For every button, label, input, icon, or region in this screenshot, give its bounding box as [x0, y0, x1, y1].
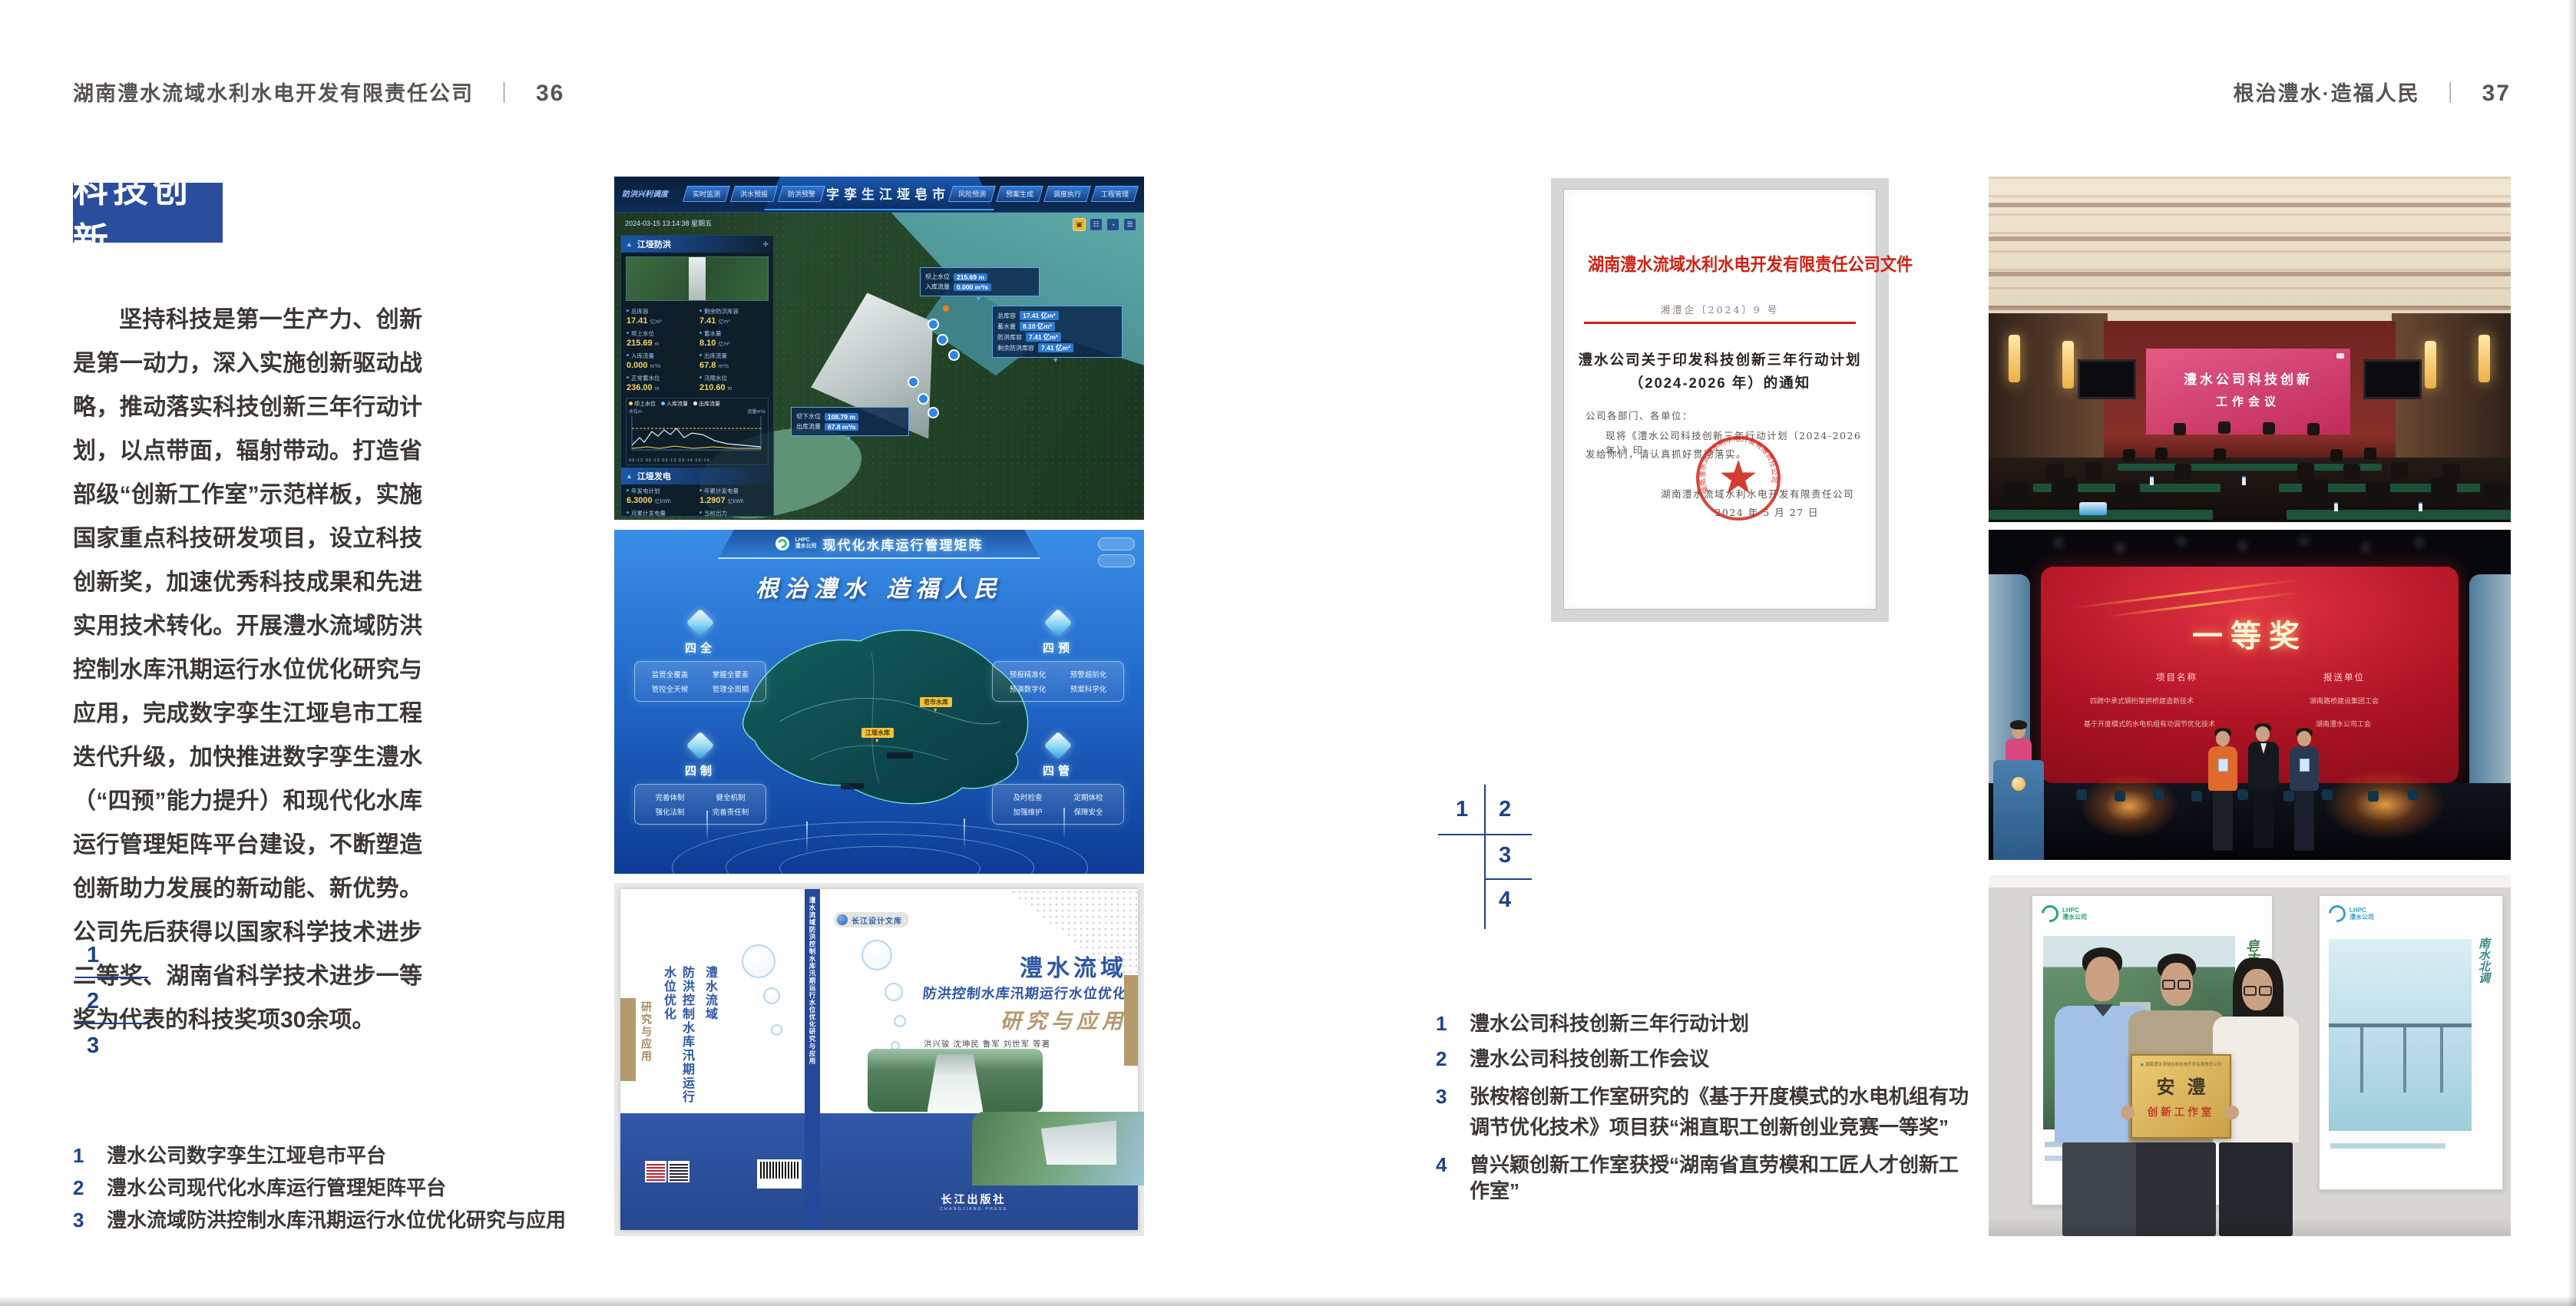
caption-row: 1 澧水公司数字孪生江垭皂市平台 [73, 1142, 580, 1169]
book-slogan: 根治澧水·造福人民 [2234, 82, 2420, 105]
left-page-header: 湖南澧水流域水利水电开发有限责任公司｜36 [73, 77, 564, 107]
ceiling-stripes [1989, 177, 2511, 334]
book-spine: 澧水流域防洪控制水库汛期运行水位优化研究与应用 [805, 889, 820, 1230]
document-salutation: 公司各部门、各单位： [1586, 408, 1693, 422]
page-bottom-shadow [0, 1296, 2576, 1306]
document-number: 湘澧企〔2024〕9 号 [1564, 302, 1876, 316]
dam-thumbnail [626, 256, 769, 301]
wall-lamp [2062, 341, 2074, 388]
dashboard-sidebar: ▲ 江垭防洪 ✛ 总库容17.41亿m³ 剩余防洪库容7.41亿m³ 坝上水位2… [620, 235, 774, 517]
document-paper: 湖南澧水流域水利水电开发有限责任公司文件 湘澧企〔2024〕9 号 澧水公司关于… [1563, 189, 1877, 610]
light-pillar [964, 818, 965, 851]
bridge-pier [2403, 1027, 2406, 1093]
figure-index-2: 2 [87, 989, 99, 1014]
figure-official-document: 湖南澧水流域水利水电开发有限责任公司文件 湘澧企〔2024〕9 号 澧水公司关于… [1551, 178, 1889, 622]
toolbar-button[interactable] [1098, 537, 1135, 551]
series-name: 长江设计文库 [852, 914, 902, 926]
person-marker [943, 306, 949, 312]
caption-number: 3 [1436, 1081, 1470, 1112]
matrix-title: 现代化水库运行管理矩阵 [823, 534, 984, 554]
figure-matrix-platform: LHPC澧水公司 现代化水库运行管理矩阵 根治澧水 造福人民 皂市水库 江垭水库… [614, 530, 1144, 874]
barcode [757, 1159, 802, 1189]
desk-row-mid-left [2033, 484, 2221, 492]
caption-row: 2 澧水公司现代化水库运行管理矩阵平台 [73, 1175, 580, 1201]
official-seal: 湖南澧水流域水利水电开发有限责任公司 [1692, 429, 1784, 521]
caption-row: 2 澧水公司科技创新工作会议 [1436, 1046, 1973, 1072]
caption-text: 张桉榕创新工作室研究的《基于开度模式的水电机组有功调节优化技术》项目获“湘直职工… [1470, 1081, 1973, 1142]
stat-cell: 汛限水位210.60m [699, 373, 768, 394]
panel-icon [1044, 609, 1073, 637]
panel-logo-icon: ▲ [626, 240, 633, 248]
caption-number: 2 [1436, 1046, 1470, 1072]
caption-text: 澧水公司现代化水库运行管理矩阵平台 [107, 1175, 446, 1201]
qr-code [645, 1161, 666, 1182]
document-masthead: 湖南澧水流域水利水电开发有限责任公司文件 [1588, 250, 1852, 276]
panel-icon [686, 732, 715, 760]
cover-title-tail: 研究与应用 [851, 1004, 1127, 1034]
stat-cell: 正常蓄水位236.00m [627, 373, 695, 394]
power-stats-grid: 年发电计划6.3000亿kWh 年累计发电量1.2907亿kWh 月累计发电量3… [621, 484, 773, 517]
trophy [2300, 759, 2310, 772]
dashboard-group-label: 防洪兴利调度 [622, 187, 668, 199]
poster-text-line [2330, 1143, 2445, 1149]
award-project-2: 基于开度模式的水电机组有功调节优化技术 [2084, 719, 2215, 729]
map-label-jiangya: 江垭水库 [861, 728, 894, 738]
header-separator: ｜ [2440, 77, 2462, 107]
caption-number: 1 [1436, 1010, 1470, 1037]
wall-lamp [2425, 341, 2436, 388]
header-separator: ｜ [494, 77, 516, 107]
water-bottle [2419, 502, 2422, 511]
cover-title-sub: 防洪控制水库汛期运行水位优化 [825, 983, 1129, 1003]
caption-text: 澧水公司科技创新三年行动计划 [1470, 1010, 1749, 1037]
host-podium [1993, 760, 2044, 860]
document-title-line1: 澧水公司关于印发科技创新三年行动计划 [1564, 349, 1876, 369]
bubble-decoration [742, 944, 775, 978]
panel-flood-header: ▲ 江垭防洪 ✛ [621, 236, 773, 253]
map-label-small [887, 752, 913, 759]
ceiling-beam [1989, 272, 2511, 276]
matrix-title-plate: LHPC澧水公司 现代化水库运行管理矩阵 [718, 530, 1040, 559]
panel-flood-title: 江垭防洪 [637, 238, 671, 250]
panel-sizhi: 四制 完善体制健全机制 强化法制完善责任制 [634, 736, 766, 825]
index-diagram-horizontal-line [1438, 834, 1532, 835]
expand-icon[interactable]: ✛ [762, 240, 769, 249]
podium-logo [2012, 777, 2025, 791]
chart-unit-left: 水位m [629, 408, 642, 415]
glasses-icon [2244, 986, 2272, 996]
front-accent-bar [1124, 975, 1138, 1066]
bridge-pier [2360, 1027, 2363, 1093]
bubble-decoration [763, 987, 780, 1004]
page-right-shadow [2568, 0, 2576, 1306]
photo-innovation-meeting: 澧水公司科技创新 工作会议 [1989, 177, 2511, 522]
plaque-org: 湖南澧水流域水利水电开发有限责任公司 [2132, 1061, 2230, 1067]
document-title-line2: （2024-2026 年）的通知 [1564, 372, 1876, 392]
tab-project-management[interactable]: 工程管理 [1091, 186, 1139, 202]
caption-row: 3 张桉榕创新工作室研究的《基于开度模式的水电机组有功调节优化技术》项目获“湘直… [1436, 1081, 1973, 1142]
dam-unit-marker [918, 393, 929, 405]
head-table [2104, 435, 2396, 458]
figure-index-4: 4 [1499, 888, 1511, 913]
body-paragraph: 坚持科技是第一生产力、创新是第一动力，深入实施创新驱动战略，推动落实科技创新三年… [73, 298, 422, 1042]
wall-top-strip [1989, 875, 2511, 888]
figure-digital-twin-dashboard: 数字孪生江垭皂市 防洪兴利调度 实时监测 洪水预报 防洪预警 风险预测 预案生成… [614, 177, 1144, 520]
dashboard-title: 数字孪生江垭皂市 [809, 184, 950, 203]
caption-row: 4 曾兴颖创新工作室获授“湖南省直劳模和工匠人才创新工作室” [1436, 1152, 1973, 1204]
award-col-unit: 报送单位 [2323, 671, 2365, 683]
panel-logo-icon: ▲ [626, 472, 633, 480]
publisher-block: 长江出版社 CHANGJIANG PRESS [874, 1192, 1073, 1212]
dam-unit-marker [937, 334, 948, 346]
user-icon[interactable]: ☰ [1123, 218, 1136, 231]
dashboard-toolbar: ▣ ☷ ◔ ☰ [1073, 218, 1136, 231]
audience-row-front [1989, 177, 1990, 178]
stat-cell: 年累计发电量1.2907亿kWh [699, 486, 768, 507]
caption-number: 3 [73, 1207, 107, 1233]
left-captions: 1 澧水公司数字孪生江垭皂市平台 2 澧水公司现代化水库运行管理矩阵平台 3 澧… [73, 1142, 580, 1233]
tab-risk-forecast[interactable]: 风险预测 [948, 186, 996, 202]
tab-flood-warning[interactable]: 防洪预警 [778, 186, 825, 202]
stat-cell: 总库容17.41亿m³ [627, 306, 695, 327]
wall-tv [2363, 359, 2422, 399]
page-number-right: 37 [2482, 81, 2511, 106]
stat-cell: 入库流量0.000m³/s [627, 351, 695, 372]
publisher-name: 长江出版社 [874, 1192, 1073, 1207]
book-cover-spread: 澧水流域 防洪控制水库汛期运行水位优化 研究与应用 澧水流域防洪控制水库汛期运行… [620, 889, 1138, 1230]
back-cover-titles: 澧水流域 防洪控制水库汛期运行水位优化 研究与应用 [639, 966, 719, 1112]
lhpc-logo-icon [775, 537, 789, 551]
panel-siyu: 四预 预报精准化预警超前化 预演数字化预案科学化 [992, 613, 1124, 702]
flood-stats-grid: 总库容17.41亿m³ 剩余防洪库容7.41亿m³ 坝上水位215.69m 蓄水… [621, 305, 773, 395]
meeting-screen: 澧水公司科技创新 工作会议 [2146, 349, 2350, 435]
stage-glow-left [2079, 774, 2179, 838]
dam-photo-front [868, 1049, 1043, 1112]
caption-text: 澧水流域防洪控制水库汛期运行水位优化研究与应用 [107, 1207, 566, 1233]
dashboard-datetime: 2024-03-15 13:14:38 星期五 [625, 218, 712, 228]
matrix-slogan: 根治澧水 造福人民 [614, 570, 1144, 603]
tab-plan-generation[interactable]: 预案生成 [996, 186, 1043, 202]
tissue-box [2079, 502, 2107, 515]
water-bottle [2334, 502, 2338, 511]
callout-downstream: 坝下水位108.79 m 出库流量67.8 m³/s ▼ [791, 407, 909, 436]
screen-logo [2336, 353, 2344, 359]
light-pillar [706, 811, 708, 843]
hand [2225, 1106, 2239, 1119]
water-bottle [2150, 476, 2154, 485]
stat-cell: 坝上水位215.69m [627, 329, 695, 349]
caption-row: 1 澧水公司科技创新三年行动计划 [1436, 1010, 1973, 1037]
stat-cell: 出库流量67.8m³/s [699, 351, 768, 372]
dam-unit-marker [928, 319, 939, 330]
panel-icon [1044, 732, 1073, 760]
poster-right: LHPC澧水公司 南水北调 [2319, 895, 2503, 1190]
figure-index-divider [75, 1023, 148, 1024]
panel-power-header: ▲ 江垭发电 [621, 468, 773, 484]
ceiling-beam [1989, 236, 2511, 241]
dam-unit-marker [908, 376, 919, 388]
caption-number: 1 [73, 1142, 107, 1169]
index-diagram-vertical-line [1484, 785, 1486, 929]
figure-index-2: 2 [1499, 797, 1511, 822]
dam-unit-marker [928, 407, 939, 418]
cover-title-region: 澧水流域 [851, 949, 1127, 983]
company-name: 湖南澧水流域水利水电开发有限责任公司 [73, 82, 474, 105]
trophy [2218, 759, 2228, 772]
wall-tv [2078, 359, 2136, 399]
figure-index-divider [75, 977, 148, 978]
chart-unit-right: 流量m³/s [747, 408, 766, 415]
right-captions: 1 澧水公司科技创新三年行动计划 2 澧水公司科技创新工作会议 3 张桉榕创新工… [1436, 1010, 1973, 1204]
desk-row-mid-right [2279, 484, 2480, 492]
award-project-1: 四跨中承式钢桁架拱桥建造新技术 [2090, 696, 2194, 706]
caption-text: 澧水公司数字孪生江垭皂市平台 [107, 1142, 386, 1169]
spine-title: 澧水流域防洪控制水库汛期运行水位优化研究与应用 [808, 897, 817, 1065]
lhpc-logo-icon: LHPC澧水公司 [2042, 905, 2087, 922]
water-level-chart: 坝上水位 入库流量 出库流量 水位m 流量m³/s 03-12 03-13 [626, 398, 769, 465]
dam-photo-band [972, 1112, 1144, 1185]
poster-right-caption: 南水北调 [2476, 937, 2492, 984]
floor-light-fixtures [1989, 530, 1990, 531]
desk-row-front-right [2287, 510, 2511, 520]
caption-text: 澧水公司科技创新工作会议 [1470, 1046, 1709, 1072]
publisher-name-en: CHANGJIANG PRESS [874, 1207, 1073, 1212]
toolbar-button[interactable] [1098, 554, 1135, 567]
screen-title-line2: 工作会议 [2146, 393, 2350, 409]
layers-icon[interactable]: ☷ [1090, 218, 1103, 231]
tab-dispatch-execution[interactable]: 调度执行 [1043, 186, 1091, 202]
section-badge: 科技创新 [73, 183, 223, 243]
award-title: 一等奖 [2041, 611, 2459, 656]
book-spread: 湖南澧水流域水利水电开发有限责任公司｜36 科技创新 坚持科技是第一生产力、创新… [0, 0, 2576, 1306]
stat-cell: 年发电计划6.3000亿kWh [627, 486, 695, 507]
caption-number: 4 [1436, 1152, 1470, 1178]
ceiling-beam [1989, 203, 2511, 207]
light-pillar [806, 822, 808, 854]
page-number-left: 36 [536, 81, 564, 106]
stat-cell: 蓄水量8.10亿m³ [699, 329, 768, 349]
panel-siguan: 四管 及时检查定期体检 加强维护保障安全 [992, 736, 1124, 825]
dam-unit-marker [948, 349, 960, 361]
panel-icon [686, 609, 715, 637]
bubble-decoration [771, 1024, 782, 1036]
document-red-rule [1584, 322, 1856, 324]
alert-icon[interactable]: ▣ [1073, 218, 1086, 231]
callout-capacity: 总库容17.41 亿m³ 蓄水量8.10 亿m³ 防洪库容7.41 亿m³ 剩余… [992, 306, 1123, 358]
ceiling-beam [1989, 306, 2511, 310]
photo-award-ceremony: 一等奖 项目名称 报送单位 四跨中承式钢桁架拱桥建造新技术 基于开度模式的水电机… [1989, 530, 2511, 860]
plaque-name: 安澧 [2132, 1072, 2230, 1099]
cover-authors: 洪兴骏 沈坤民 鲁军 刘世军 等著 [851, 1038, 1123, 1050]
right-page-header: 根治澧水·造福人民｜37 [1843, 77, 2511, 107]
stat-cell: 当前出力0.00MW [699, 508, 768, 517]
figure-index-3: 3 [1499, 843, 1511, 868]
compass-icon[interactable]: ◔ [1106, 218, 1119, 231]
map-label-small [841, 783, 864, 789]
stat-cell: 剩余防洪库容7.41亿m³ [699, 306, 768, 327]
bridge-pier [2440, 1027, 2443, 1093]
series-chip: 长江设计文库 [834, 912, 909, 927]
globe-icon [837, 914, 848, 925]
tab-realtime-monitoring[interactable]: 实时监测 [683, 186, 730, 202]
chart-plot [629, 415, 764, 455]
map-label-zaoshi: 皂市水库 [920, 697, 952, 707]
poster-right-image [2329, 939, 2472, 1131]
caption-number: 2 [73, 1175, 107, 1201]
chart-legend: 坝上水位 入库流量 出库流量 [629, 400, 766, 408]
stat-cell: 月累计发电量3359.21万 [627, 508, 695, 517]
chart-x-labels: 03-12 03-13 03-13 03-14 03-14 [629, 458, 766, 463]
photo-innovation-studio-plaque: LHPC澧水公司 皂市水库 LHPC澧水公司 南水北调 [1989, 875, 2511, 1236]
panel-siquan: 四全 监管全覆盖掌握全要素 管控全天候管理全周期 [634, 613, 766, 702]
caption-text: 曾兴颖创新工作室获授“湖南省直劳模和工匠人才创新工作室” [1470, 1152, 1973, 1204]
dashboard-tabs-right: 风险预测 预案生成 调度执行 工程管理 [951, 186, 1136, 202]
figure-index-1: 1 [1456, 797, 1468, 822]
panel-power-title: 江垭发电 [637, 470, 671, 482]
bridge-deck [2329, 1023, 2472, 1027]
callout-upstream: 坝上水位215.69 m 入库流量0.000 m³/s ▼ [920, 267, 1040, 296]
glasses-icon [2162, 980, 2191, 990]
wall-lamp [2478, 335, 2490, 382]
wall-lamp [2009, 335, 2020, 382]
lhpc-logo-icon: LHPC澧水公司 [2329, 905, 2374, 922]
light-pillar [1063, 808, 1065, 840]
floor-shadow [1989, 1218, 2511, 1236]
innovation-studio-plaque: 湖南澧水流域水利水电开发有限责任公司 安澧 创新工作室 [2131, 1054, 2231, 1139]
dashboard-tabs-left: 实时监测 洪水预报 防洪预警 [685, 186, 823, 202]
screen-title-line1: 澧水公司科技创新 [2146, 369, 2350, 388]
stage-glow-right [2323, 769, 2446, 840]
index-diagram-short-line [1484, 878, 1532, 880]
award-col-project: 项目名称 [2156, 671, 2197, 683]
award-unit-1: 湖南路桥建设集团工会 [2310, 696, 2379, 706]
caption-row: 3 澧水流域防洪控制水库汛期运行水位优化研究与应用 [73, 1207, 580, 1233]
plaque-subtitle: 创新工作室 [2132, 1103, 2230, 1119]
tab-flood-forecast[interactable]: 洪水预报 [730, 186, 778, 202]
figure-index-1: 1 [87, 943, 99, 968]
award-unit-2: 湖南澧水公司工会 [2316, 719, 2371, 729]
qr-code [668, 1161, 689, 1182]
figure-book-cover: 澧水流域 防洪控制水库汛期运行水位优化 研究与应用 澧水流域防洪控制水库汛期运行… [614, 883, 1144, 1236]
water-bottle [2242, 476, 2246, 485]
back-accent-bar [620, 998, 636, 1081]
desk-row-far [2118, 464, 2382, 471]
figure-index-3: 3 [87, 1033, 99, 1059]
hand [2121, 1106, 2135, 1119]
